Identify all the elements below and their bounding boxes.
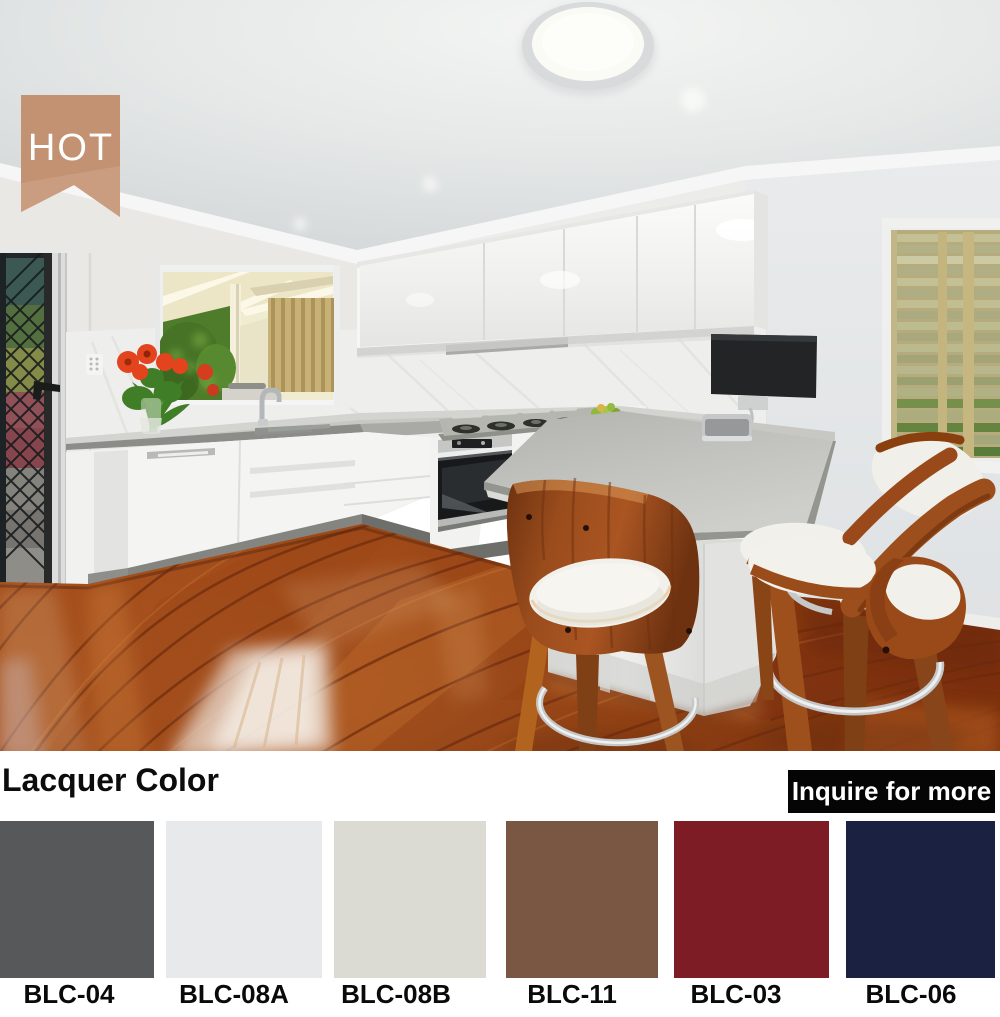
svg-text:HOT: HOT — [28, 127, 114, 169]
